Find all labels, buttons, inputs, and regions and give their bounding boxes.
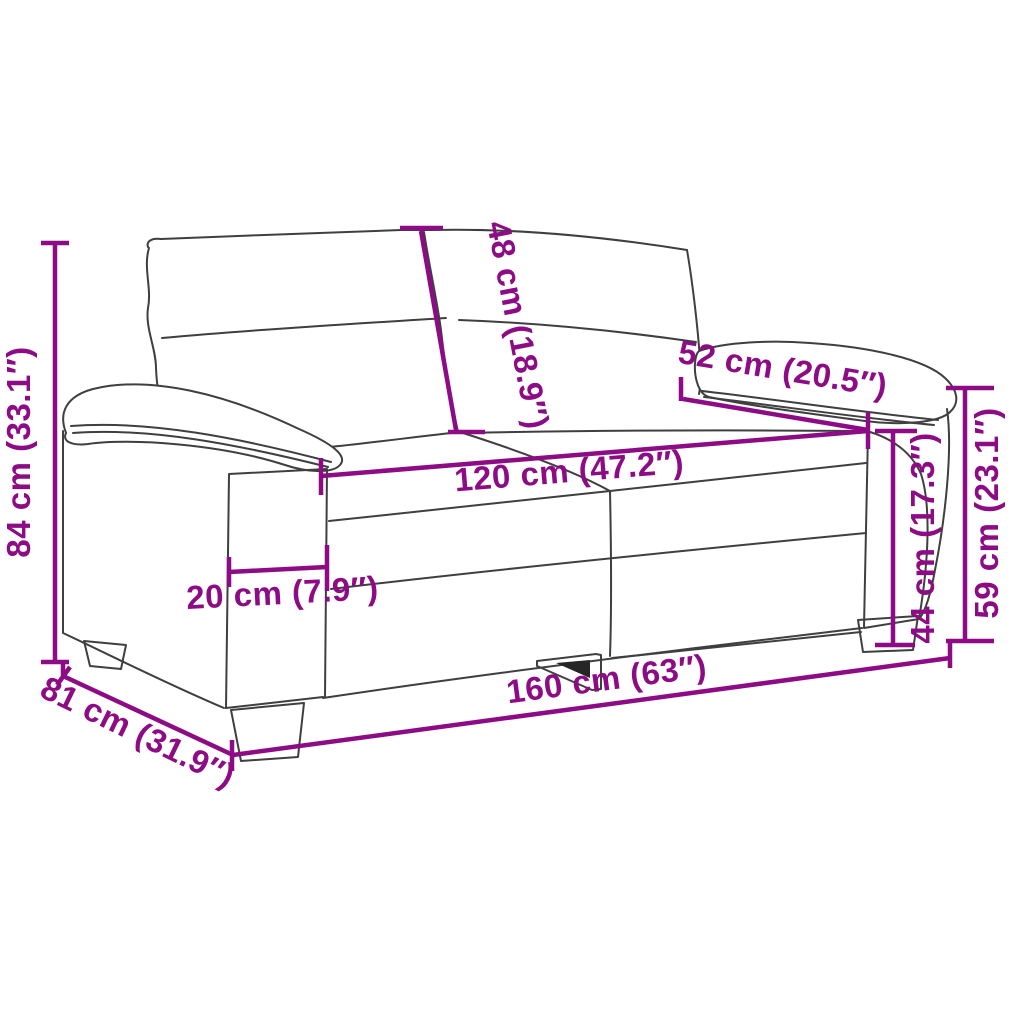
right-arm-inner-edge <box>864 432 868 627</box>
backrest-right-top-edge <box>432 230 687 250</box>
dimension-armrest-height: 59 cm (23.1″) <box>946 388 1005 668</box>
dimension-label-seat-height: 44 cm (17.3″) <box>904 432 941 643</box>
left-arm-cushion <box>63 384 342 471</box>
backrest-left-top-edge <box>148 230 432 247</box>
dimension-line <box>421 231 456 430</box>
dimension-armrest-width: 20 cm (7.9″) <box>185 545 379 616</box>
dimension-line <box>229 567 327 572</box>
dimension-label-overall-height: 84 cm (33.1″) <box>0 346 37 557</box>
backrest-right-seam <box>459 320 696 342</box>
left-side-panel <box>63 431 229 708</box>
dimension-diagram: 84 cm (33.1″) 48 cm (18.9″) 52 cm (20.5″… <box>0 0 1024 1024</box>
dimension-overall-height: 84 cm (33.1″) <box>0 243 69 662</box>
dimension-label-overall-depth: 81 cm (31.9″) <box>35 669 241 795</box>
dimension-overall-width: 160 cm (63″) <box>232 647 950 771</box>
sofa-dimension-drawing: 84 cm (33.1″) 48 cm (18.9″) 52 cm (20.5″… <box>0 0 1024 1024</box>
dimension-label-armrest-width: 20 cm (7.9″) <box>185 569 379 616</box>
dimension-backrest-height: 48 cm (18.9″) <box>400 218 557 432</box>
dimension-label-armrest-height: 59 cm (23.1″) <box>968 407 1005 618</box>
dimension-label-seat-width: 120 cm (47.2″) <box>453 443 685 499</box>
dimension-seat-height: 44 cm (17.3″) <box>875 431 941 645</box>
dimension-seat-width: 120 cm (47.2″) <box>321 412 868 498</box>
seat-middle-seam <box>610 491 611 656</box>
dimension-overall-depth: 81 cm (31.9″) <box>35 662 241 795</box>
backrest-left-seam <box>162 318 446 338</box>
dimension-label-overall-width: 160 cm (63″) <box>504 647 709 710</box>
seat-base-seam <box>331 533 866 589</box>
